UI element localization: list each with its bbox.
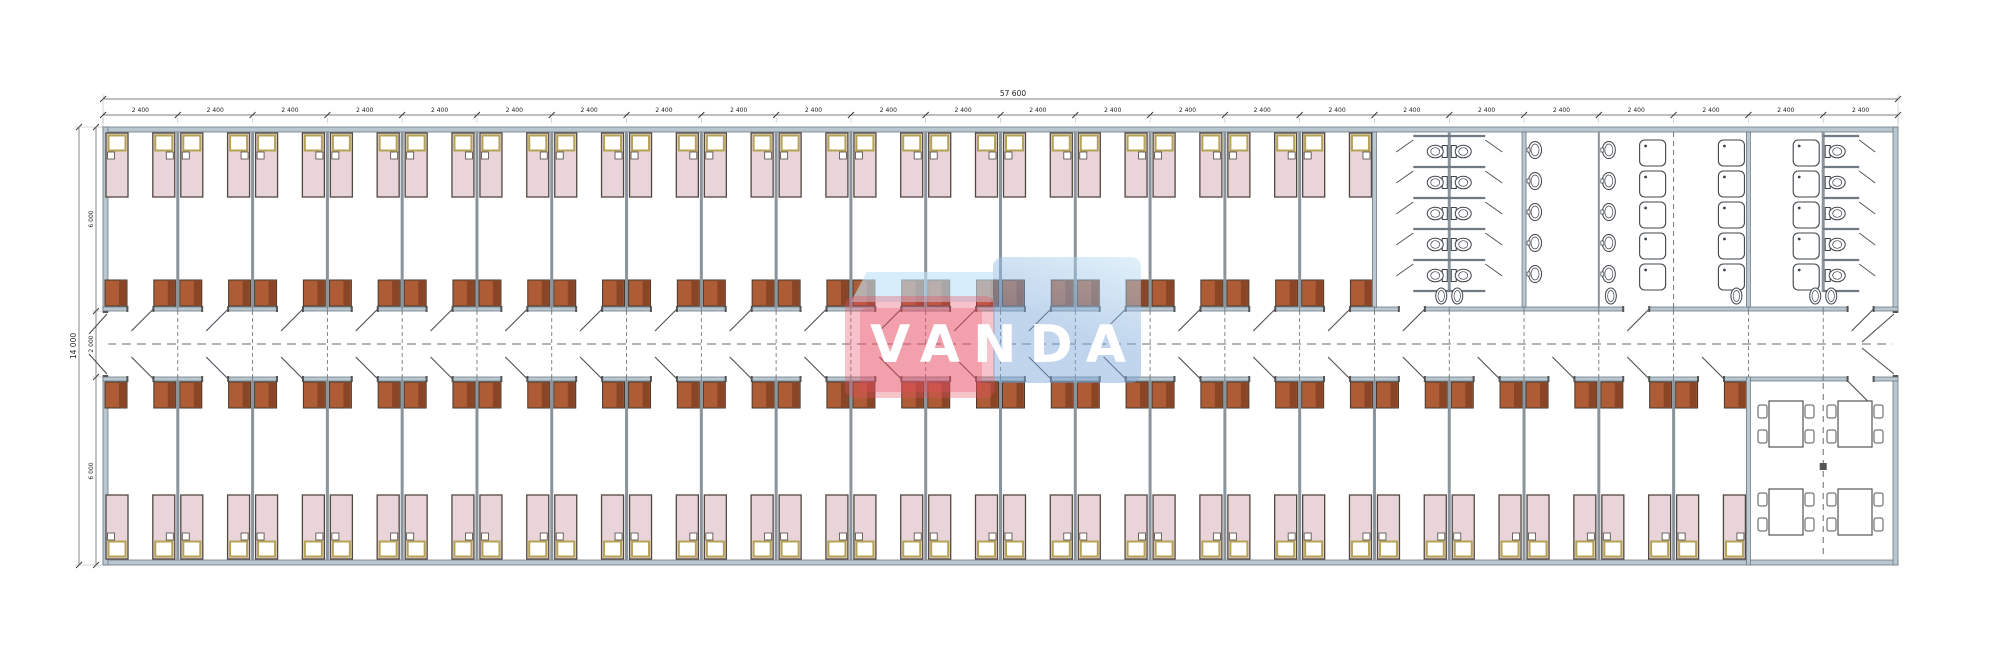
wardrobe	[554, 280, 576, 306]
bed	[1499, 495, 1521, 559]
bed	[153, 133, 175, 197]
bed	[330, 133, 352, 197]
basin	[1601, 204, 1616, 221]
pillow	[1427, 542, 1444, 557]
bed	[779, 495, 801, 559]
pillow	[155, 136, 172, 151]
wardrobe	[677, 382, 699, 408]
basin	[1527, 266, 1542, 283]
wardrobe	[303, 280, 325, 306]
dimension-label: 2 400	[581, 107, 598, 114]
chair	[1758, 518, 1767, 531]
bed	[704, 133, 726, 197]
pillow	[632, 136, 649, 151]
wardrobe	[1376, 382, 1398, 408]
wardrobe	[928, 280, 950, 306]
pillow	[903, 542, 920, 557]
pillow	[557, 542, 574, 557]
pillow	[1277, 136, 1294, 151]
dimension-label: 2 400	[730, 107, 747, 114]
wardrobe	[303, 382, 325, 408]
wardrobe	[1003, 382, 1025, 408]
bed	[1200, 495, 1222, 559]
bed	[704, 495, 726, 559]
wardrobe	[1077, 382, 1099, 408]
shower	[1718, 171, 1744, 197]
pillow	[1604, 542, 1621, 557]
room-door-leaf	[1627, 309, 1649, 331]
wardrobe	[180, 280, 202, 306]
toilet	[1427, 269, 1447, 282]
bed	[405, 133, 427, 197]
dimension-label: 6 000	[88, 210, 95, 227]
wardrobe	[778, 280, 800, 306]
pillow	[109, 136, 126, 151]
pillow	[1202, 542, 1219, 557]
wardrobe	[378, 280, 400, 306]
room-door-leaf	[356, 357, 378, 379]
bed	[1677, 495, 1699, 559]
dimension-label: 2 400	[805, 107, 822, 114]
chair	[1827, 493, 1836, 506]
room-door-leaf	[1104, 309, 1126, 331]
bed	[302, 133, 324, 197]
wardrobe	[453, 280, 475, 306]
room-door-leaf	[206, 309, 228, 331]
bed	[555, 133, 577, 197]
wardrobe	[1724, 382, 1746, 408]
wardrobe	[853, 382, 875, 408]
wardrobe	[404, 280, 426, 306]
toilet	[1825, 269, 1845, 282]
bed	[976, 495, 998, 559]
pillow	[454, 542, 471, 557]
stall-door-leaf	[1396, 171, 1413, 183]
dimension-label: 2 400	[356, 107, 373, 114]
bed	[153, 495, 175, 559]
entrance-door-leaf	[1862, 348, 1894, 374]
pillow	[1305, 136, 1322, 151]
wardrobe	[752, 382, 774, 408]
toilet	[1451, 207, 1471, 220]
chair	[1874, 518, 1883, 531]
shower	[1718, 233, 1744, 259]
wardrobe	[1302, 382, 1324, 408]
basin	[1601, 173, 1616, 190]
room-door-leaf	[805, 357, 827, 379]
pillow	[1053, 136, 1070, 151]
room-door-leaf	[954, 357, 976, 379]
bed	[377, 133, 399, 197]
dimension-label: 2 400	[1403, 107, 1420, 114]
chair	[1805, 518, 1814, 531]
pillow	[1576, 542, 1593, 557]
room-door-leaf	[1328, 309, 1350, 331]
entrance-door-leaf	[1862, 314, 1894, 342]
bed	[1574, 495, 1596, 559]
stall-door-leaf	[1485, 171, 1502, 183]
toilet	[1436, 288, 1447, 304]
bed	[1004, 495, 1026, 559]
bed	[676, 495, 698, 559]
basin	[1601, 235, 1616, 252]
bed	[181, 133, 203, 197]
room-door-leaf	[1178, 357, 1200, 379]
wardrobe	[1575, 382, 1597, 408]
basin	[1527, 235, 1542, 252]
dimension-label: 2 400	[1104, 107, 1121, 114]
stall-door-leaf	[1396, 264, 1413, 276]
pillow	[155, 542, 172, 557]
chair	[1827, 430, 1836, 443]
room-door-leaf	[281, 309, 303, 331]
bed	[480, 495, 502, 559]
pillow	[482, 542, 499, 557]
chair	[1805, 405, 1814, 418]
room-door-leaf	[1702, 357, 1724, 379]
pillow	[1380, 542, 1397, 557]
wardrobe	[1425, 382, 1447, 408]
stall-door-leaf	[1859, 140, 1875, 152]
bed	[676, 133, 698, 197]
wardrobe	[1201, 280, 1223, 306]
room-door-leaf	[879, 309, 901, 331]
wardrobe	[629, 280, 651, 306]
wardrobe	[329, 280, 351, 306]
bed	[976, 133, 998, 197]
wardrobe	[1126, 382, 1148, 408]
dining-table	[1827, 489, 1883, 535]
pillow	[604, 542, 621, 557]
room-door-leaf	[655, 309, 677, 331]
pillow	[1128, 136, 1145, 151]
wardrobe	[1126, 280, 1148, 306]
toilet	[1825, 238, 1845, 251]
bed	[826, 495, 848, 559]
room-door-leaf	[505, 357, 527, 379]
toilet	[1810, 288, 1821, 304]
wardrobe	[154, 280, 176, 306]
bed	[1275, 495, 1297, 559]
bed	[106, 495, 128, 559]
bed	[854, 133, 876, 197]
stall-door-leaf	[1485, 264, 1502, 276]
room-door-leaf	[1029, 309, 1051, 331]
bed	[106, 133, 128, 197]
pillow	[679, 136, 696, 151]
room-door-leaf	[131, 309, 153, 331]
pillow	[1726, 542, 1743, 557]
chair	[1805, 493, 1814, 506]
bed	[1228, 133, 1250, 197]
dimension-label: 57 600	[1000, 89, 1026, 98]
pillow	[230, 542, 247, 557]
pillow	[305, 136, 322, 151]
wardrobe	[229, 382, 251, 408]
pillow	[408, 136, 425, 151]
pillow	[856, 542, 873, 557]
bed	[1153, 133, 1175, 197]
chair	[1758, 405, 1767, 418]
bed	[228, 133, 250, 197]
pillow	[632, 542, 649, 557]
bed	[901, 133, 923, 197]
wardrobe	[1451, 382, 1473, 408]
bed	[228, 495, 250, 559]
stall-door-leaf	[1859, 202, 1875, 214]
bed	[452, 495, 474, 559]
pillow	[1679, 542, 1696, 557]
pillow	[707, 136, 724, 151]
pillow	[109, 542, 126, 557]
bed	[1050, 495, 1072, 559]
pillow	[258, 542, 275, 557]
shower	[1640, 202, 1666, 228]
bed	[1723, 495, 1745, 559]
bed	[751, 495, 773, 559]
room-door-leaf	[805, 309, 827, 331]
bed	[1349, 133, 1371, 197]
wardrobe	[1526, 382, 1548, 408]
bed	[1153, 495, 1175, 559]
wardrobe	[154, 382, 176, 408]
dimension-label: 2 400	[281, 107, 298, 114]
wardrobe	[479, 280, 501, 306]
dining-room	[1746, 377, 1883, 565]
pillow	[1352, 136, 1369, 151]
wardrobe	[479, 382, 501, 408]
bed	[1275, 133, 1297, 197]
pillow	[230, 136, 247, 151]
pillow	[183, 136, 200, 151]
toilet	[1427, 207, 1447, 220]
chair	[1874, 430, 1883, 443]
bed	[1377, 495, 1399, 559]
bed	[302, 495, 324, 559]
pillow	[707, 542, 724, 557]
wardrobe	[1003, 280, 1025, 306]
pillow	[856, 136, 873, 151]
shower	[1793, 140, 1819, 166]
wardrobe	[404, 382, 426, 408]
bed	[826, 133, 848, 197]
chair	[1874, 405, 1883, 418]
pillow	[529, 136, 546, 151]
wardrobe	[1276, 280, 1298, 306]
pillow	[380, 542, 397, 557]
pillow	[754, 542, 771, 557]
pillow	[183, 542, 200, 557]
dimension-label: 2 400	[1029, 107, 1046, 114]
dimension-label: 2 400	[880, 107, 897, 114]
bed	[405, 495, 427, 559]
pillow	[482, 136, 499, 151]
pillow	[931, 542, 948, 557]
dimension-label: 2 400	[1702, 107, 1719, 114]
pillow	[1305, 542, 1322, 557]
wardrobe	[902, 280, 924, 306]
pillow	[754, 136, 771, 151]
stall-door-leaf	[1485, 202, 1502, 214]
chair	[1805, 430, 1814, 443]
pillow	[1277, 542, 1294, 557]
wardrobe	[1152, 382, 1174, 408]
basin	[1527, 204, 1542, 221]
wardrobe	[554, 382, 576, 408]
pillow	[1230, 542, 1247, 557]
bed	[480, 133, 502, 197]
bed	[1050, 133, 1072, 197]
room-door-leaf	[356, 309, 378, 331]
dimension-label: 2 400	[1179, 107, 1196, 114]
floor-plan-drawing: 57 6002 4002 4002 4002 4002 4002 4002 40…	[0, 0, 2000, 654]
wardrobe	[1051, 280, 1073, 306]
shower	[1640, 233, 1666, 259]
toilet	[1451, 176, 1471, 189]
chair	[1874, 493, 1883, 506]
wardrobe	[603, 280, 625, 306]
dimension-label: 2 400	[506, 107, 523, 114]
wardrobe	[629, 382, 651, 408]
pillow	[1502, 542, 1519, 557]
dining-table	[1758, 401, 1814, 447]
pillow	[529, 542, 546, 557]
pillow	[828, 136, 845, 151]
bed	[377, 495, 399, 559]
wardrobe	[1650, 382, 1672, 408]
bed	[452, 133, 474, 197]
dimension-label: 2 400	[1852, 107, 1869, 114]
stall-door-leaf	[1396, 202, 1413, 214]
bed	[1228, 495, 1250, 559]
bed	[1200, 133, 1222, 197]
dining-table	[1758, 489, 1814, 535]
wardrobe	[528, 382, 550, 408]
room-door-leaf	[1029, 357, 1051, 379]
dimension-label: 2 400	[1328, 107, 1345, 114]
bed	[1452, 495, 1474, 559]
chair	[1758, 493, 1767, 506]
room-door-leaf	[1627, 357, 1649, 379]
basin	[1601, 266, 1616, 283]
dimension-label: 2 400	[1478, 107, 1495, 114]
pillow	[782, 542, 799, 557]
dimension-label: 2 400	[1777, 107, 1794, 114]
basin	[1527, 142, 1542, 159]
room-door-leaf	[580, 357, 602, 379]
room-door-leaf	[730, 309, 752, 331]
stall-door-leaf	[1485, 233, 1502, 245]
pillow	[931, 136, 948, 151]
toilet	[1825, 176, 1845, 189]
shower	[1793, 171, 1819, 197]
bed	[527, 133, 549, 197]
wardrobe	[1601, 382, 1623, 408]
shower	[1718, 202, 1744, 228]
wardrobe	[105, 280, 127, 306]
wardrobe	[1500, 382, 1522, 408]
toilet	[1451, 269, 1471, 282]
pillow	[380, 136, 397, 151]
bed	[779, 133, 801, 197]
pillow	[1455, 542, 1472, 557]
wardrobe	[778, 382, 800, 408]
pillow	[408, 542, 425, 557]
bed	[1125, 133, 1147, 197]
bed	[1004, 133, 1026, 197]
bed	[929, 495, 951, 559]
pillow	[828, 542, 845, 557]
dining-table	[1827, 401, 1883, 447]
shower	[1640, 140, 1666, 166]
wardrobe	[1152, 280, 1174, 306]
shower	[1793, 264, 1819, 290]
shower	[1793, 233, 1819, 259]
pillow	[454, 136, 471, 151]
stall-door-leaf	[1396, 233, 1413, 245]
room-door-leaf	[1852, 309, 1874, 331]
bed	[929, 133, 951, 197]
toilet	[1825, 145, 1845, 158]
basin	[1601, 142, 1616, 159]
bed	[1349, 495, 1371, 559]
toilet	[1427, 145, 1447, 158]
basin	[1527, 173, 1542, 190]
pillow	[679, 542, 696, 557]
bed	[330, 495, 352, 559]
pillow	[1053, 542, 1070, 557]
bed	[854, 495, 876, 559]
wardrobe	[1302, 280, 1324, 306]
wardrobe	[255, 382, 277, 408]
bed	[1078, 495, 1100, 559]
wardrobe	[528, 280, 550, 306]
room-door-leaf	[655, 357, 677, 379]
bed	[630, 495, 652, 559]
room-door-leaf	[580, 309, 602, 331]
wardrobe	[902, 382, 924, 408]
pillow	[1352, 542, 1369, 557]
bed	[602, 495, 624, 559]
room-door-leaf	[431, 309, 453, 331]
bed	[901, 495, 923, 559]
bed	[555, 495, 577, 559]
pillow	[1651, 542, 1668, 557]
bed	[602, 133, 624, 197]
wardrobe	[1676, 382, 1698, 408]
pillow	[1081, 136, 1098, 151]
toilet	[1826, 288, 1837, 304]
wardrobe	[1227, 280, 1249, 306]
wardrobe	[453, 382, 475, 408]
wardrobe	[1201, 382, 1223, 408]
wardrobe	[827, 280, 849, 306]
bed	[1125, 495, 1147, 559]
pillow	[1202, 136, 1219, 151]
wardrobe	[378, 382, 400, 408]
chair	[1758, 430, 1767, 443]
room-door-leaf	[954, 309, 976, 331]
wardrobe	[1350, 382, 1372, 408]
bed	[1649, 495, 1671, 559]
bed	[1602, 495, 1624, 559]
pillow	[1530, 542, 1547, 557]
room-door-leaf	[1328, 357, 1350, 379]
bed	[1078, 133, 1100, 197]
toilet	[1452, 288, 1463, 304]
chair	[1827, 405, 1836, 418]
wardrobe	[853, 280, 875, 306]
